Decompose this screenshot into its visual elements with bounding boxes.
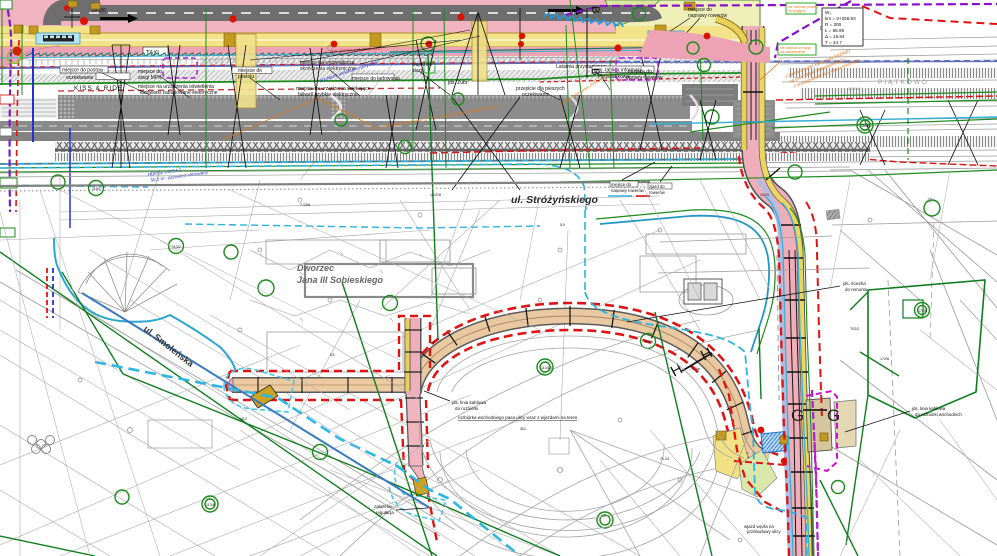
svg-text:zjazd do: zjazd do: [649, 184, 665, 189]
svg-text:rozbiórka wschodniego pasa uli: rozbiórka wschodniego pasa ulicy wraz z …: [458, 415, 578, 420]
svg-text:CF: CF: [430, 341, 436, 345]
svg-text:ładowarki zabudowane elektrycz: ładowarki zabudowane elektryczne: [140, 90, 218, 96]
svg-text:stacji MPK: stacji MPK: [138, 75, 162, 81]
svg-text:104/44: 104/44: [848, 86, 861, 91]
svg-text:Dworzec: Dworzec: [297, 263, 334, 273]
svg-text:jds. linia kablowa: jds. linia kablowa: [911, 406, 946, 411]
svg-text:104/4: 104/4: [861, 124, 870, 128]
svg-text:172/5: 172/5: [918, 309, 927, 313]
svg-text:1/1378: 1/1378: [430, 193, 441, 197]
svg-text:miejsce do postoju: miejsce do postoju: [62, 68, 104, 74]
svg-text:przebudowy ulicy: przebudowy ulicy: [747, 529, 781, 534]
svg-text:skończenia elektroniczne: skończenia elektroniczne: [300, 66, 356, 72]
svg-text:jds. ścieżka: jds. ścieżka: [842, 281, 866, 286]
svg-text:do rozbiórki wschodnich: do rozbiórki wschodnich: [915, 412, 962, 417]
svg-text:172/6: 172/6: [880, 357, 889, 361]
svg-text:T = 44.7: T = 44.7: [825, 40, 842, 45]
svg-text:ze względu: ze względu: [788, 9, 806, 13]
svg-text:W₁: W₁: [825, 10, 831, 15]
svg-text:7.13/8: 7.13/8: [300, 203, 310, 207]
svg-text:naprawy rowerów: naprawy rowerów: [611, 188, 645, 193]
svg-text:ul. Stróżyńskiego: ul. Stróżyńskiego: [511, 194, 599, 206]
svg-text:L = 88.69: L = 88.69: [825, 28, 845, 33]
svg-text:5.0: 5.0: [560, 223, 565, 227]
svg-text:PIĄTKOWO: PIĄTKOWO: [878, 79, 929, 86]
svg-text:102/1: 102/1: [760, 193, 769, 197]
svg-text:Δ = 16.94: Δ = 16.94: [825, 34, 845, 39]
svg-text:oczekiwanie: oczekiwanie: [66, 75, 93, 81]
svg-text:113/6: 113/6: [206, 503, 215, 507]
svg-text:71.24: 71.24: [660, 457, 669, 461]
svg-text:miejsce do: miejsce do: [611, 182, 632, 187]
svg-text:B: B: [589, 6, 601, 13]
svg-text:jds. linia kablowa: jds. linia kablowa: [451, 400, 487, 405]
svg-text:113/10: 113/10: [541, 366, 552, 370]
svg-text:16.2: 16.2: [240, 417, 247, 421]
svg-text:R = 300: R = 300: [825, 22, 842, 27]
svg-text:miejsce do ładowania: miejsce do ładowania: [352, 76, 400, 82]
svg-text:do remontu: do remontu: [845, 287, 868, 292]
svg-text:113/8: 113/8: [644, 340, 653, 344]
svg-text:301: 301: [520, 427, 526, 431]
svg-text:T02/2: T02/2: [850, 327, 859, 331]
svg-text:km = 0+255.93: km = 0+255.93: [825, 16, 856, 21]
svg-text:failwell szybkie elektryczne: failwell szybkie elektryczne: [298, 92, 358, 98]
svg-text:jds. Żubr: jds. Żubr: [447, 79, 468, 86]
svg-text:na zadrzewienie: na zadrzewienie: [780, 50, 805, 54]
svg-text:B: B: [589, 68, 601, 75]
svg-text:założenie: założenie: [374, 504, 393, 509]
svg-text:KISS & RIDE: KISS & RIDE: [74, 85, 123, 92]
svg-text:rowerów: rowerów: [649, 190, 666, 195]
svg-text:Jana III Sobieskiego: Jana III Sobieskiego: [297, 275, 384, 285]
svg-text:119/2: 119/2: [92, 187, 101, 191]
svg-text:G: G: [791, 406, 804, 425]
svg-text:94.35: 94.35: [468, 180, 479, 185]
svg-text:regulacja: regulacja: [376, 510, 394, 515]
svg-text:V3: V3: [330, 353, 334, 357]
svg-text:75.3m: 75.3m: [690, 367, 700, 371]
svg-text:G: G: [827, 406, 840, 425]
svg-text:do rozbiórki: do rozbiórki: [455, 406, 478, 411]
